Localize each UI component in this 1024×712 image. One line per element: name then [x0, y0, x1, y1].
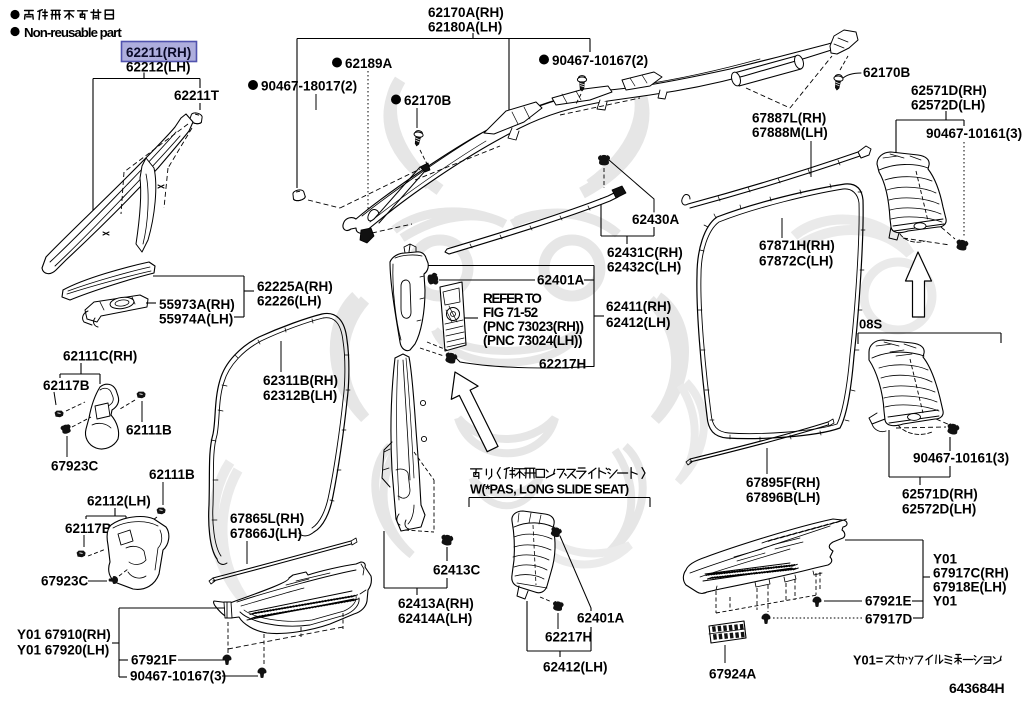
- svg-text:Y01 67920(LH): Y01 67920(LH): [17, 643, 109, 658]
- svg-text:67918E(LH): 67918E(LH): [933, 580, 1007, 595]
- svg-text:55973A(RH): 55973A(RH): [159, 297, 235, 312]
- svg-text:08S: 08S: [859, 317, 882, 332]
- svg-text:67921F: 67921F: [131, 653, 177, 668]
- svg-text:62170B: 62170B: [863, 65, 911, 80]
- svg-text:62571D(RH): 62571D(RH): [902, 487, 978, 502]
- svg-text:62212(LH): 62212(LH): [126, 60, 191, 75]
- svg-text:Y01 67910(RH): Y01 67910(RH): [17, 627, 111, 642]
- svg-text:62431C(RH): 62431C(RH): [607, 245, 683, 260]
- svg-text:90467-18017(2): 90467-18017(2): [261, 79, 357, 94]
- svg-text:62170A(RH): 62170A(RH): [428, 5, 504, 20]
- svg-text:62413A(RH): 62413A(RH): [398, 596, 474, 611]
- svg-text:62413C: 62413C: [433, 563, 481, 578]
- svg-text:55974A(LH): 55974A(LH): [159, 312, 233, 327]
- svg-text:62117B: 62117B: [43, 378, 90, 393]
- svg-text:W(*PAS, LONG SLIDE SEAT): W(*PAS, LONG SLIDE SEAT): [470, 482, 629, 497]
- svg-text:62401A: 62401A: [577, 611, 625, 626]
- svg-text:62217H: 62217H: [539, 357, 586, 372]
- svg-text:62572D(LH): 62572D(LH): [911, 98, 985, 113]
- svg-text:67865L(RH): 67865L(RH): [230, 511, 304, 526]
- svg-text:90467-10167(2): 90467-10167(2): [552, 53, 648, 68]
- svg-text:67887L(RH): 67887L(RH): [752, 111, 826, 126]
- svg-text:(PNC 73024(LH)): (PNC 73024(LH)): [483, 333, 582, 348]
- svg-text:67917C(RH): 67917C(RH): [933, 566, 1009, 581]
- svg-text:Y01: Y01: [933, 594, 958, 609]
- svg-text:62225A(RH): 62225A(RH): [257, 279, 333, 294]
- svg-text:67888M(LH): 67888M(LH): [752, 125, 828, 140]
- svg-text:62414A(LH): 62414A(LH): [398, 611, 472, 626]
- svg-text:62111C(RH): 62111C(RH): [63, 349, 137, 364]
- svg-text:REFER TO: REFER TO: [483, 291, 541, 306]
- svg-text:643684H: 643684H: [949, 680, 1005, 696]
- svg-text:62211(RH): 62211(RH): [126, 45, 191, 60]
- svg-text:FIG 71-52: FIG 71-52: [483, 305, 538, 320]
- svg-text:62111B: 62111B: [149, 467, 195, 482]
- svg-text:62180A(LH): 62180A(LH): [428, 20, 502, 35]
- svg-text:62189A: 62189A: [345, 56, 393, 71]
- svg-text:62111B: 62111B: [126, 423, 172, 438]
- svg-text:Y01: Y01: [933, 552, 958, 567]
- svg-text:67921E: 67921E: [865, 594, 912, 609]
- svg-text:90467-10161(3): 90467-10161(3): [913, 451, 1009, 466]
- svg-text:90467-10161(3): 90467-10161(3): [926, 126, 1022, 141]
- svg-text:62217H: 62217H: [545, 630, 592, 645]
- svg-text:62430A: 62430A: [632, 212, 680, 227]
- svg-text:Y01=: Y01=: [853, 653, 883, 668]
- svg-text:62112(LH): 62112(LH): [87, 494, 151, 509]
- svg-text:62572D(LH): 62572D(LH): [902, 502, 976, 517]
- svg-text:67917D: 67917D: [865, 612, 913, 627]
- svg-text:62226(LH): 62226(LH): [257, 294, 322, 309]
- svg-text:67895F(RH): 67895F(RH): [746, 475, 820, 490]
- svg-text:62311B(RH): 62311B(RH): [263, 373, 338, 388]
- svg-text:62211T: 62211T: [174, 88, 220, 103]
- svg-text:62571D(RH): 62571D(RH): [911, 83, 987, 98]
- svg-text:67923C: 67923C: [41, 574, 89, 589]
- svg-text:67866J(LH): 67866J(LH): [230, 526, 302, 541]
- svg-text:67871H(RH): 67871H(RH): [759, 238, 835, 253]
- svg-text:62312B(LH): 62312B(LH): [263, 388, 337, 403]
- svg-text:62432C(LH): 62432C(LH): [607, 260, 681, 275]
- svg-text:62412(LH): 62412(LH): [543, 660, 608, 675]
- svg-text:90467-10167(3): 90467-10167(3): [130, 669, 226, 684]
- svg-text:62170B: 62170B: [404, 93, 452, 108]
- svg-text:62117B: 62117B: [65, 521, 112, 536]
- svg-text:67924A: 67924A: [709, 667, 757, 682]
- svg-text:62412(LH): 62412(LH): [606, 315, 671, 330]
- svg-text:Non-reusable part: Non-reusable part: [24, 25, 122, 40]
- svg-text:62411(RH): 62411(RH): [606, 299, 671, 314]
- svg-text:67872C(LH): 67872C(LH): [759, 254, 833, 269]
- svg-text:67923C: 67923C: [51, 459, 99, 474]
- svg-text:67896B(LH): 67896B(LH): [746, 490, 820, 505]
- svg-text:62401A: 62401A: [537, 273, 585, 288]
- svg-text:(PNC 73023(RH)): (PNC 73023(RH)): [483, 319, 584, 334]
